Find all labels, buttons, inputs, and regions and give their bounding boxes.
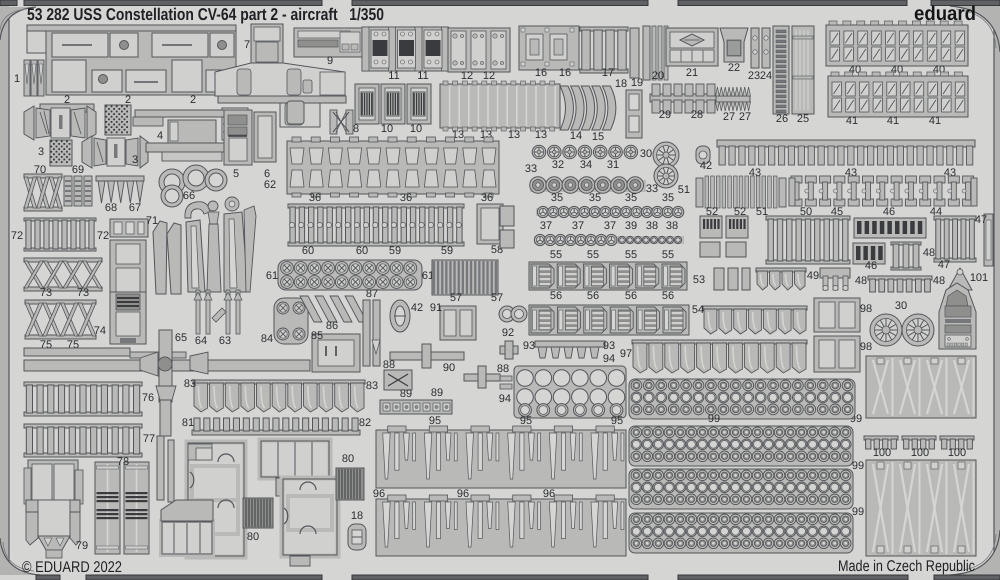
svg-text:4: 4	[157, 130, 163, 142]
svg-text:83: 83	[184, 378, 196, 390]
svg-text:37: 37	[604, 220, 616, 232]
svg-text:28: 28	[691, 109, 703, 121]
svg-text:38: 38	[646, 220, 658, 232]
svg-text:21: 21	[686, 67, 698, 79]
svg-text:97: 97	[620, 348, 632, 360]
svg-text:31: 31	[607, 159, 619, 171]
svg-text:72: 72	[11, 230, 23, 242]
svg-text:73: 73	[77, 287, 89, 299]
svg-text:55: 55	[625, 249, 637, 261]
svg-text:35: 35	[589, 192, 601, 204]
svg-text:57: 57	[450, 292, 462, 304]
svg-text:96: 96	[543, 488, 555, 500]
svg-text:34: 34	[580, 159, 592, 171]
svg-text:41: 41	[929, 115, 941, 127]
svg-text:55: 55	[587, 249, 599, 261]
svg-text:42: 42	[411, 302, 423, 314]
svg-text:67: 67	[129, 202, 141, 214]
svg-text:42: 42	[700, 160, 712, 172]
svg-text:56: 56	[625, 290, 637, 302]
svg-text:25: 25	[797, 113, 809, 125]
svg-text:64: 64	[195, 335, 207, 347]
svg-text:68: 68	[105, 202, 117, 214]
svg-text:47: 47	[938, 259, 950, 271]
svg-text:51: 51	[678, 184, 690, 196]
svg-text:35: 35	[551, 192, 563, 204]
svg-text:11: 11	[417, 70, 428, 82]
svg-text:12: 12	[483, 70, 495, 82]
svg-text:5: 5	[233, 168, 239, 180]
svg-text:8: 8	[353, 123, 359, 135]
svg-text:69: 69	[72, 164, 84, 176]
svg-text:91: 91	[430, 302, 442, 314]
svg-text:95: 95	[611, 415, 623, 427]
svg-text:61: 61	[266, 270, 278, 282]
svg-text:57: 57	[491, 292, 503, 304]
svg-text:62: 62	[264, 179, 276, 191]
svg-text:96: 96	[457, 488, 469, 500]
svg-text:56: 56	[587, 290, 599, 302]
svg-text:23: 23	[748, 70, 760, 82]
svg-text:13: 13	[508, 129, 520, 141]
svg-text:36: 36	[400, 192, 412, 204]
svg-text:10: 10	[410, 123, 422, 135]
svg-text:60: 60	[302, 245, 314, 257]
svg-text:93: 93	[523, 340, 535, 352]
svg-text:38: 38	[666, 220, 678, 232]
svg-text:24: 24	[760, 70, 772, 82]
svg-text:55: 55	[662, 249, 674, 261]
svg-text:93: 93	[603, 340, 615, 352]
svg-text:89: 89	[431, 387, 443, 399]
svg-text:56: 56	[662, 290, 674, 302]
svg-text:55: 55	[550, 249, 562, 261]
svg-text:86: 86	[326, 320, 338, 332]
svg-text:87: 87	[366, 288, 378, 300]
svg-text:65: 65	[175, 332, 187, 344]
svg-text:41: 41	[887, 115, 899, 127]
svg-text:92: 92	[502, 327, 514, 339]
svg-text:76: 76	[142, 392, 154, 404]
svg-text:17: 17	[602, 67, 614, 79]
svg-text:72: 72	[97, 230, 109, 242]
svg-text:3: 3	[38, 146, 44, 158]
svg-text:36: 36	[481, 192, 493, 204]
svg-text:29: 29	[659, 109, 671, 121]
svg-text:18: 18	[351, 510, 363, 522]
svg-text:85: 85	[311, 330, 323, 342]
svg-text:81: 81	[182, 417, 194, 429]
svg-text:33: 33	[646, 183, 658, 195]
svg-text:96: 96	[373, 488, 385, 500]
svg-text:7: 7	[244, 39, 250, 51]
svg-text:Made in Czech Republic: Made in Czech Republic	[838, 558, 975, 575]
svg-text:26: 26	[776, 113, 788, 125]
svg-text:53 282 USS Constellation CV-64: 53 282 USS Constellation CV-64 part 2 - …	[27, 5, 384, 24]
svg-text:37: 37	[540, 220, 552, 232]
svg-text:88: 88	[383, 359, 395, 371]
svg-text:63: 63	[219, 335, 231, 347]
svg-text:16: 16	[559, 67, 571, 79]
svg-text:20: 20	[652, 70, 664, 82]
svg-text:48: 48	[933, 275, 945, 287]
svg-text:98: 98	[860, 341, 872, 353]
svg-text:53: 53	[693, 274, 705, 286]
svg-text:94: 94	[603, 353, 615, 365]
svg-text:94: 94	[499, 393, 511, 405]
svg-text:99: 99	[708, 413, 720, 425]
svg-text:46: 46	[865, 260, 877, 272]
svg-text:82: 82	[359, 417, 371, 429]
svg-text:13: 13	[535, 129, 547, 141]
svg-text:47: 47	[975, 214, 987, 226]
svg-text:59: 59	[389, 245, 401, 257]
svg-text:83: 83	[366, 380, 378, 392]
svg-text:89: 89	[400, 388, 412, 400]
svg-text:32: 32	[552, 159, 564, 171]
svg-text:90: 90	[443, 362, 455, 374]
svg-text:22: 22	[728, 62, 740, 74]
svg-text:46: 46	[883, 206, 895, 218]
svg-text:59: 59	[441, 245, 453, 257]
svg-text:95: 95	[520, 415, 532, 427]
svg-text:2: 2	[190, 94, 196, 106]
svg-text:39: 39	[625, 220, 637, 232]
svg-text:10: 10	[381, 123, 393, 135]
svg-text:84: 84	[261, 333, 273, 345]
svg-text:100: 100	[911, 447, 929, 459]
svg-text:2: 2	[125, 94, 131, 106]
svg-text:54: 54	[692, 304, 704, 316]
svg-text:73: 73	[40, 287, 52, 299]
svg-text:48: 48	[923, 247, 935, 259]
svg-text:80: 80	[342, 453, 354, 465]
svg-text:14: 14	[570, 130, 582, 142]
svg-text:16: 16	[535, 67, 547, 79]
svg-text:79: 79	[76, 540, 88, 552]
svg-text:60: 60	[356, 245, 368, 257]
svg-text:36: 36	[309, 192, 321, 204]
svg-text:98: 98	[860, 303, 872, 315]
svg-text:1: 1	[14, 73, 20, 85]
svg-text:18: 18	[615, 78, 627, 90]
svg-text:100: 100	[948, 447, 966, 459]
svg-text:37: 37	[572, 220, 584, 232]
svg-text:41: 41	[846, 115, 858, 127]
svg-text:95: 95	[429, 415, 441, 427]
svg-text:27: 27	[739, 111, 751, 123]
svg-text:12: 12	[461, 70, 473, 82]
svg-text:80: 80	[247, 531, 259, 543]
svg-text:99: 99	[852, 506, 864, 518]
svg-text:66: 66	[183, 190, 195, 202]
svg-text:56: 56	[550, 290, 562, 302]
svg-text:49: 49	[807, 270, 819, 282]
svg-text:35: 35	[625, 192, 637, 204]
svg-text:77: 77	[143, 433, 155, 445]
svg-text:27: 27	[723, 111, 735, 123]
svg-text:© EDUARD 2022: © EDUARD 2022	[22, 559, 122, 576]
svg-text:101: 101	[970, 272, 988, 284]
svg-text:74: 74	[94, 325, 106, 337]
svg-text:19: 19	[631, 77, 643, 89]
svg-text:78: 78	[117, 456, 129, 468]
svg-text:9: 9	[327, 55, 333, 67]
svg-text:48: 48	[855, 275, 867, 287]
svg-text:35: 35	[662, 192, 674, 204]
svg-text:71: 71	[146, 215, 158, 227]
svg-text:30: 30	[895, 300, 907, 312]
svg-text:99: 99	[852, 460, 864, 472]
svg-text:100: 100	[873, 447, 891, 459]
svg-text:15: 15	[592, 131, 604, 143]
svg-text:11: 11	[388, 70, 399, 82]
svg-text:3: 3	[132, 154, 138, 166]
svg-text:88: 88	[497, 363, 509, 375]
svg-text:33: 33	[525, 163, 537, 175]
svg-text:30: 30	[640, 148, 652, 160]
